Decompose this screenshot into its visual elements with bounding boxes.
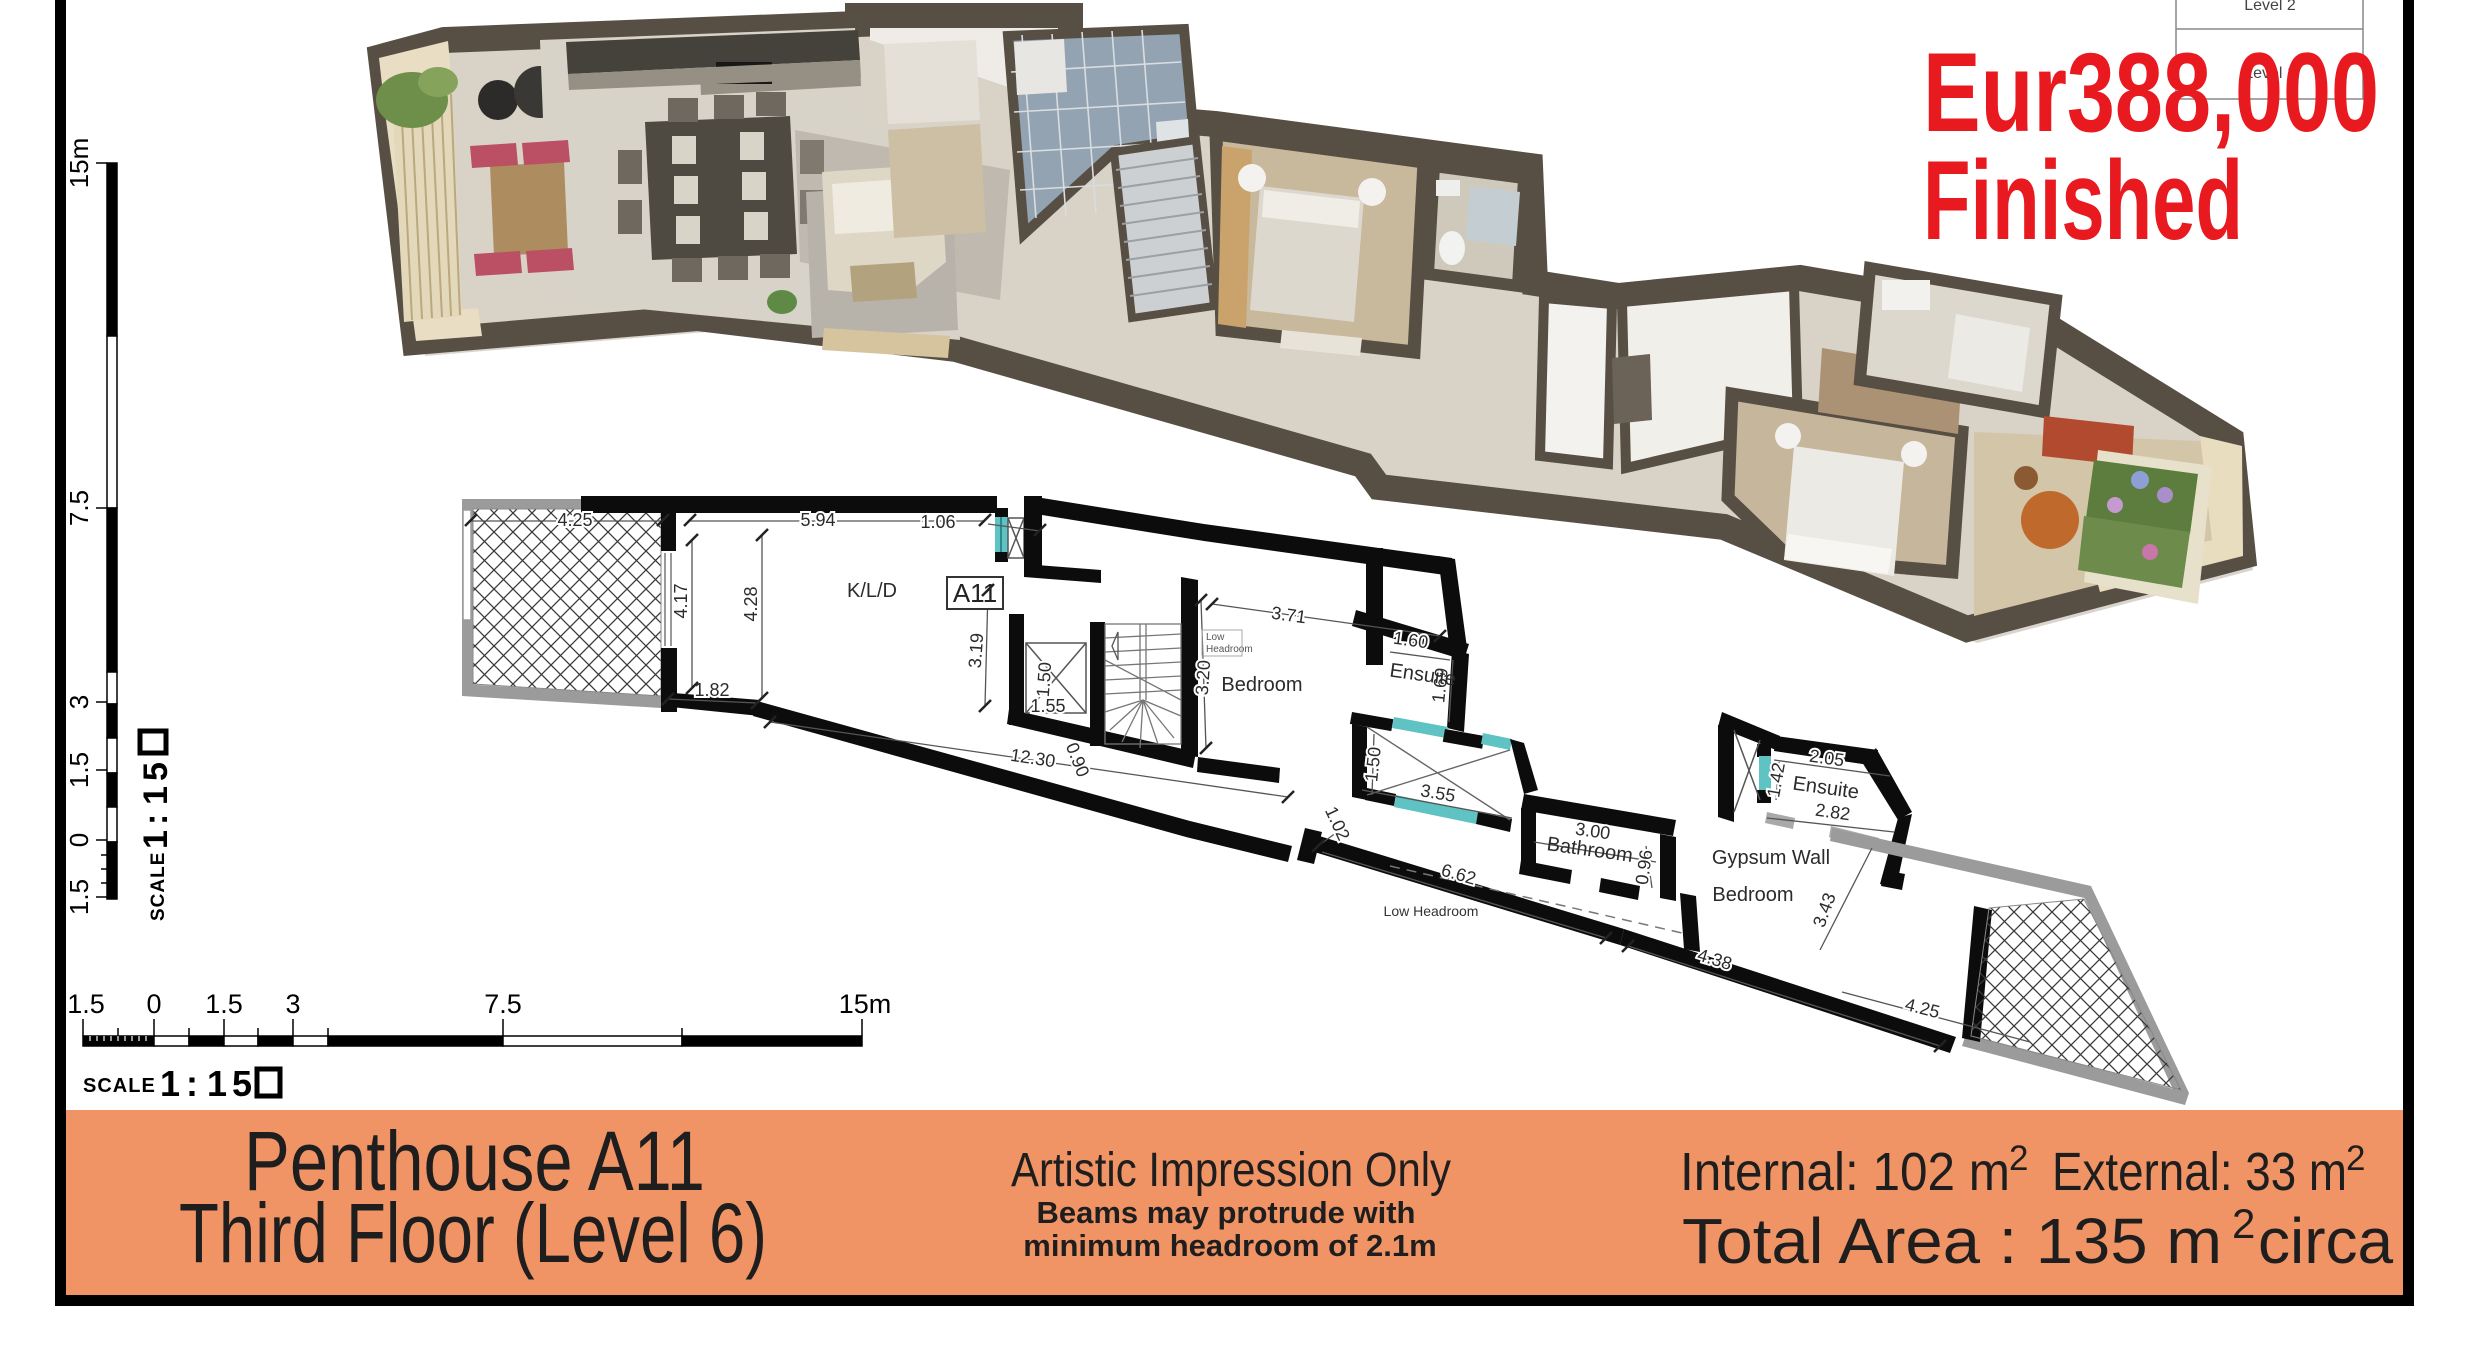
svg-text:Bedroom: Bedroom: [1221, 674, 1302, 696]
svg-text:Eur388,000: Eur388,000: [1923, 30, 2379, 155]
svg-text:Headroom: Headroom: [1206, 644, 1253, 655]
svg-text:1.06: 1.06: [920, 512, 955, 532]
svg-text:Low Headroom: Low Headroom: [1384, 903, 1479, 919]
svg-text:2: 2: [2232, 1200, 2255, 1247]
svg-text:Beams may protrude with: Beams may protrude with: [1037, 1195, 1416, 1230]
svg-text:SCALE: SCALE: [83, 1075, 156, 1097]
svg-text:Internal: 102 m: Internal: 102 m: [1680, 1142, 2010, 1202]
svg-text::: :: [137, 814, 175, 825]
svg-text:2: 2: [2346, 1139, 2365, 1178]
svg-text:1.55: 1.55: [1030, 696, 1065, 716]
svg-text:1.5: 1.5: [205, 989, 243, 1019]
svg-text:5.94: 5.94: [800, 510, 835, 530]
svg-text::: :: [186, 1063, 198, 1104]
svg-text:0: 0: [146, 989, 161, 1019]
svg-text:Bedroom: Bedroom: [1712, 884, 1793, 906]
svg-text:1.50: 1.50: [1361, 746, 1385, 783]
svg-text:1.82: 1.82: [694, 680, 729, 700]
svg-text:Third Floor (Level 6): Third Floor (Level 6): [179, 1186, 767, 1280]
svg-text:15m: 15m: [64, 138, 94, 189]
svg-text:2: 2: [2009, 1139, 2028, 1178]
svg-text:K/L/D: K/L/D: [847, 580, 897, 602]
svg-text:Level 2: Level 2: [2244, 0, 2296, 14]
svg-text:A11: A11: [953, 578, 997, 608]
svg-text:15m: 15m: [839, 989, 892, 1019]
svg-text:4.25: 4.25: [557, 510, 592, 530]
svg-text:Low: Low: [1206, 632, 1225, 643]
svg-text:Total Area : 135 m: Total Area : 135 m: [1682, 1205, 2222, 1277]
svg-text:4.28: 4.28: [741, 586, 761, 621]
svg-text:SCALE: SCALE: [148, 852, 169, 921]
svg-text:minimum headroom of 2.1m: minimum headroom of 2.1m: [1023, 1228, 1436, 1263]
svg-text:1.5: 1.5: [64, 752, 94, 788]
svg-text:1: 1: [137, 830, 175, 849]
svg-text:5: 5: [137, 762, 175, 781]
svg-text:0: 0: [64, 833, 94, 847]
svg-text:Artistic Impression Only: Artistic Impression Only: [1011, 1144, 1451, 1197]
svg-text:7.5: 7.5: [484, 989, 522, 1019]
svg-text:1: 1: [160, 1063, 180, 1104]
svg-text:4.17: 4.17: [671, 583, 691, 618]
svg-text:Finished: Finished: [1923, 138, 2243, 263]
svg-text:3: 3: [64, 695, 94, 709]
svg-text:1: 1: [137, 786, 175, 805]
svg-text:circa: circa: [2258, 1205, 2394, 1277]
svg-text:7.5: 7.5: [64, 490, 94, 526]
svg-text:1.5: 1.5: [64, 879, 94, 915]
svg-text:1.50: 1.50: [1033, 661, 1055, 697]
svg-text:3: 3: [285, 989, 300, 1019]
svg-text:3.20: 3.20: [1192, 659, 1214, 695]
svg-text:5: 5: [232, 1063, 252, 1104]
svg-text:1: 1: [207, 1063, 227, 1104]
svg-text:3.19: 3.19: [965, 632, 987, 668]
svg-text:1.5: 1.5: [67, 989, 105, 1019]
svg-text:External: 33 m: External: 33 m: [2052, 1142, 2347, 1202]
svg-text:Gypsum Wall: Gypsum Wall: [1712, 847, 1830, 869]
